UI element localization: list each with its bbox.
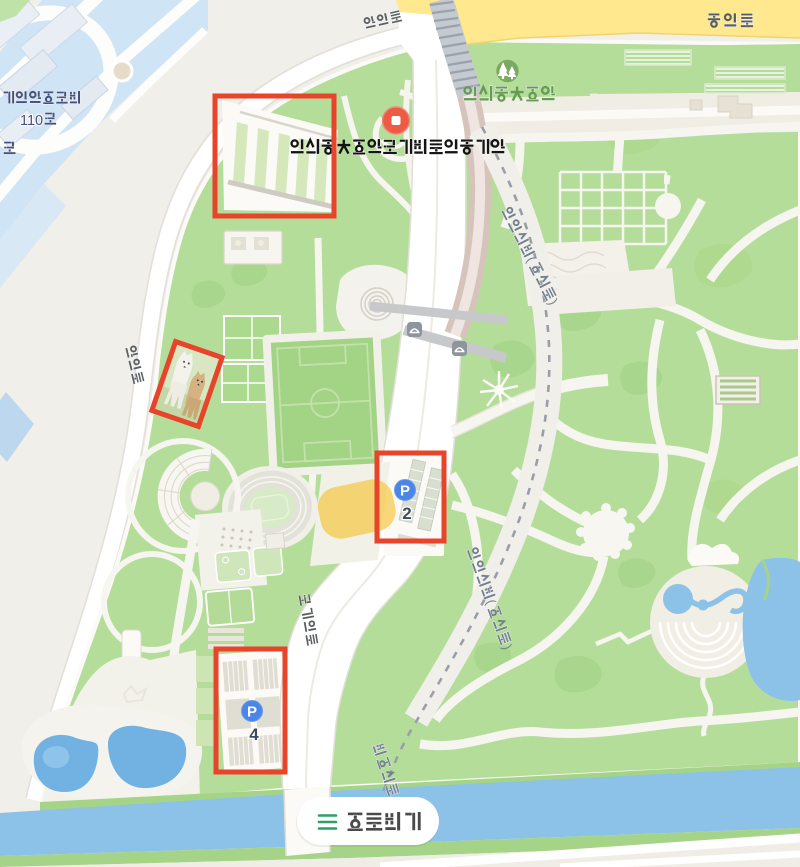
svg-text:110: 110 <box>20 113 43 129</box>
svg-text:P: P <box>247 704 257 721</box>
svg-text:P: P <box>400 483 410 500</box>
svg-text:4: 4 <box>249 725 259 744</box>
svg-text:2: 2 <box>402 504 411 523</box>
